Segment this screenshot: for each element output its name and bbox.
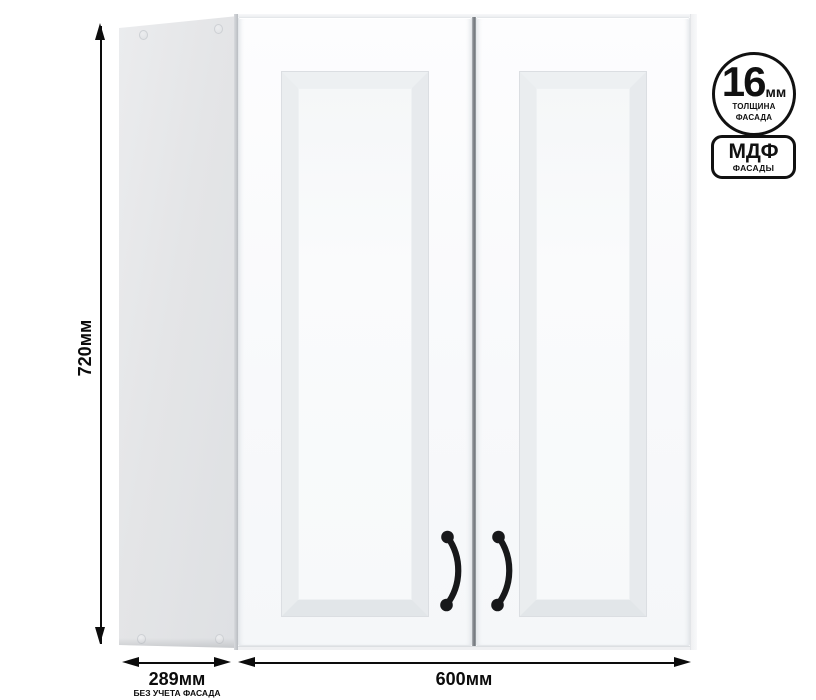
cabinet-front	[238, 14, 690, 650]
width-dimension-line	[253, 662, 675, 664]
depth-dimension-note: БЕЗ УЧЕТА ФАСАДА	[102, 689, 252, 698]
material-caption: ФАСАДЫ	[733, 164, 775, 173]
thickness-caption-line1: ТОЛЩИНА	[732, 102, 775, 112]
door-handle-icon	[489, 527, 517, 615]
facade-thickness-badge: 16 мм ТОЛЩИНА ФАСАДА	[712, 52, 796, 136]
height-arrow-up-icon	[95, 23, 105, 40]
cabinet-side-panel	[119, 16, 238, 648]
cabinet-bottom-edge	[238, 646, 690, 650]
depth-arrow-right-icon	[214, 657, 231, 667]
width-dimension-label: 600мм	[384, 670, 544, 688]
depth-dimension-label: 289мм	[117, 670, 237, 688]
width-arrow-right-icon	[674, 657, 691, 667]
thickness-caption-line2: ФАСАДА	[732, 113, 775, 123]
thickness-value: 16	[722, 65, 765, 99]
cabinet-right-edge	[690, 14, 697, 650]
product-image: 720мм 289мм БЕЗ УЧЕТА ФАСАДА 600мм 16 мм…	[0, 0, 816, 700]
door-raised-panel	[282, 72, 428, 616]
thickness-value-row: 16 мм	[722, 65, 786, 99]
door-handle-icon	[438, 527, 466, 615]
cam-cover-cap	[137, 634, 146, 644]
cam-cover-cap	[139, 30, 148, 40]
thickness-unit: мм	[766, 85, 787, 99]
facade-material-badge: МДФ ФАСАДЫ	[711, 135, 796, 179]
cabinet-door-left	[238, 17, 472, 646]
depth-dimension-line	[137, 662, 217, 664]
material-name: МДФ	[728, 141, 778, 162]
door-raised-panel	[520, 72, 646, 616]
cam-cover-cap	[214, 24, 223, 34]
height-dimension-label: 720мм	[76, 298, 96, 398]
height-arrow-down-icon	[95, 627, 105, 644]
thickness-caption: ТОЛЩИНА ФАСАДА	[732, 102, 775, 123]
cam-cover-cap	[215, 634, 224, 644]
height-dimension-line	[100, 26, 102, 644]
